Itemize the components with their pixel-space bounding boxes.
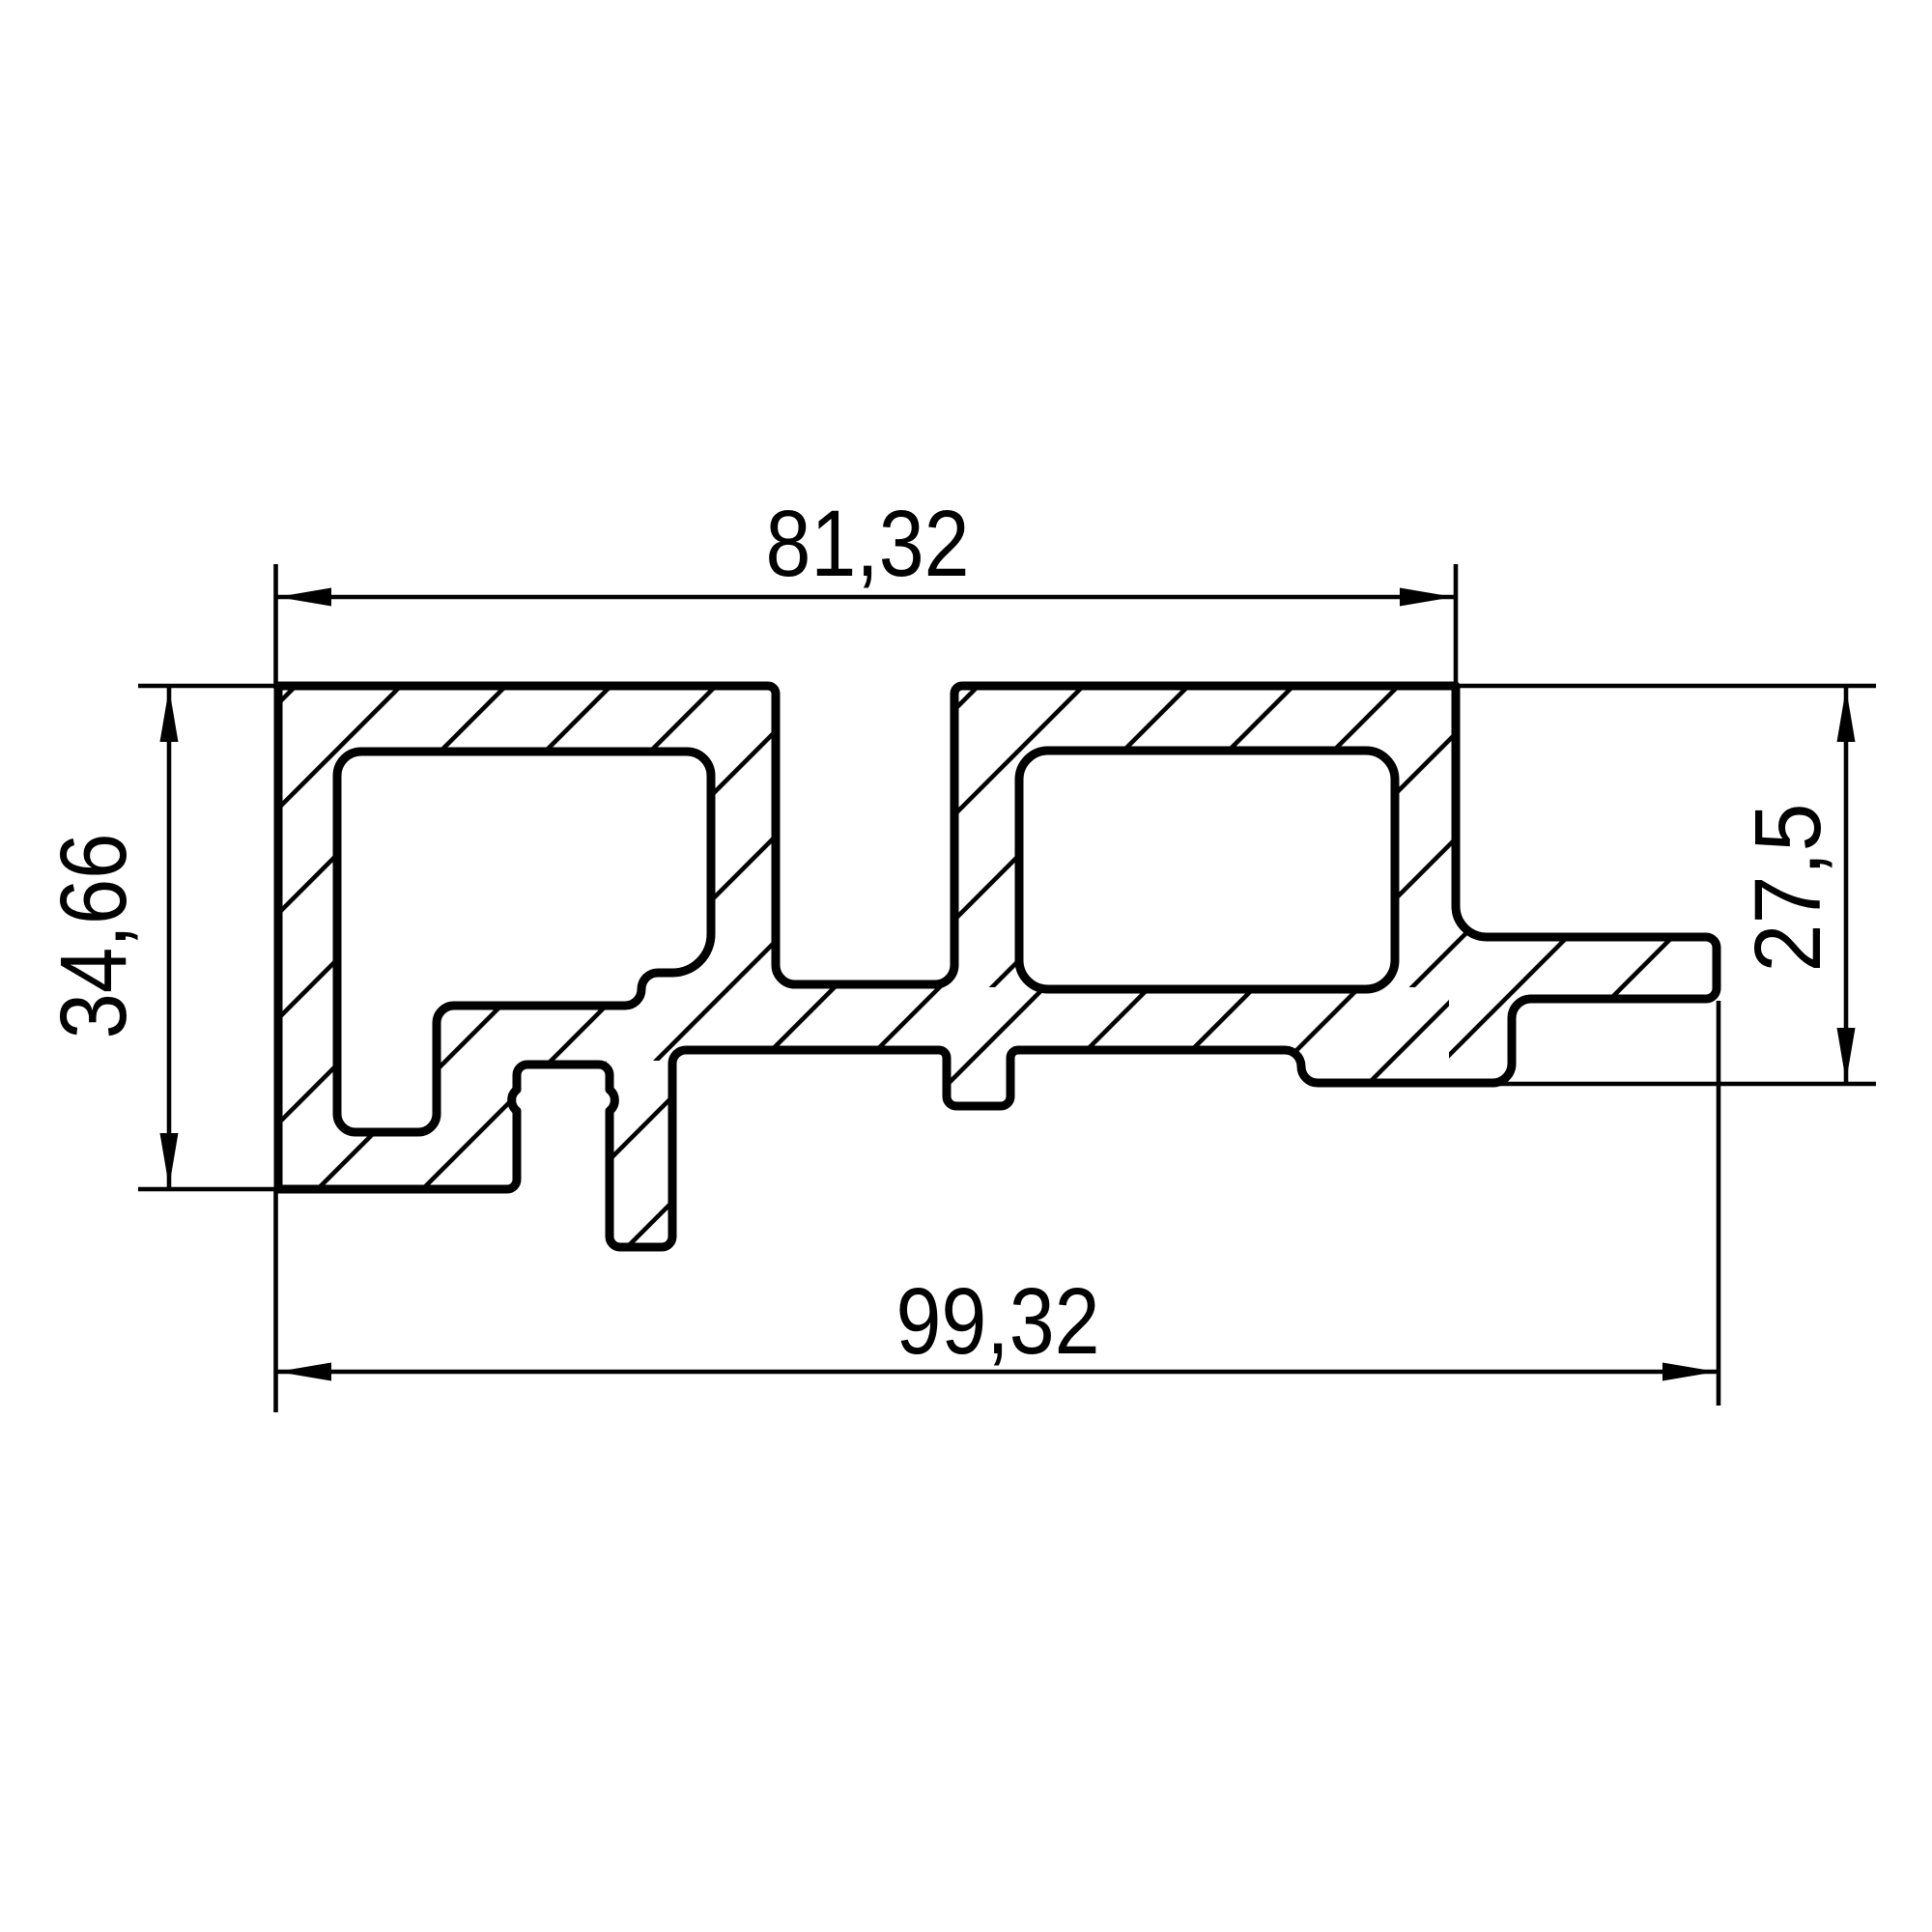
svg-text:27,5: 27,5 — [1735, 804, 1840, 973]
svg-text:99,32: 99,32 — [896, 1268, 1100, 1374]
svg-text:81,32: 81,32 — [766, 491, 970, 596]
svg-text:34,66: 34,66 — [41, 834, 146, 1039]
